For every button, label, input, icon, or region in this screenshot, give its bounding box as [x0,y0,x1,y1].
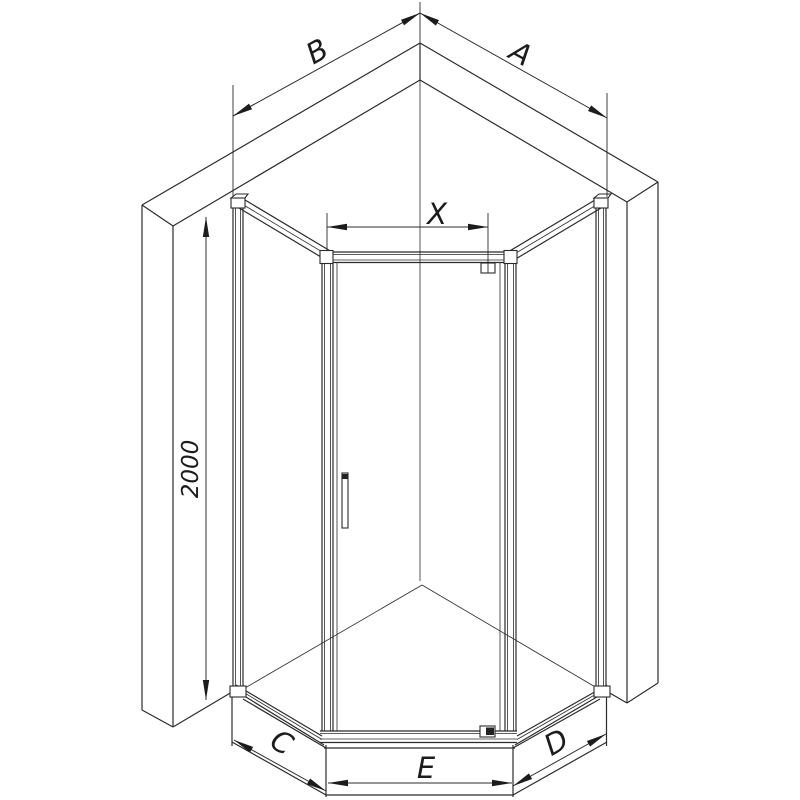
front-left-connector [320,251,333,264]
door-handle-icon [342,473,348,528]
dimension-c-label: C [265,722,300,762]
rear-left-cap [231,198,245,208]
dimension-labels: B A X 2000 C D E [178,32,574,785]
door-and-front-posts [322,263,516,731]
rear-right-cap [594,198,608,208]
rear-left-cap-top [231,194,248,198]
door-bottom-pivot-block [486,728,494,736]
dimension-lines [203,13,607,791]
technical-drawing-canvas: B A X 2000 C D E [0,0,800,800]
shower-tray-back-edges [245,585,597,688]
frame-connectors [230,194,611,697]
rear-right-foot [594,686,610,697]
background-walls [142,2,658,727]
door-handle-mount [343,474,348,479]
door-hardware [342,263,495,737]
dimension-height-label: 2000 [178,440,204,499]
dimension-e-label: E [417,751,436,785]
dimension-x-label: X [425,197,448,231]
rear-left-foot [230,686,246,697]
front-right-connector [504,251,517,264]
dimension-a-label: A [502,33,538,73]
rear-right-cap-top [594,194,611,198]
shower-enclosure-diagram: B A X 2000 C D E [0,0,800,800]
dimension-b-label: B [300,32,334,71]
frame-rear-posts [233,208,606,686]
